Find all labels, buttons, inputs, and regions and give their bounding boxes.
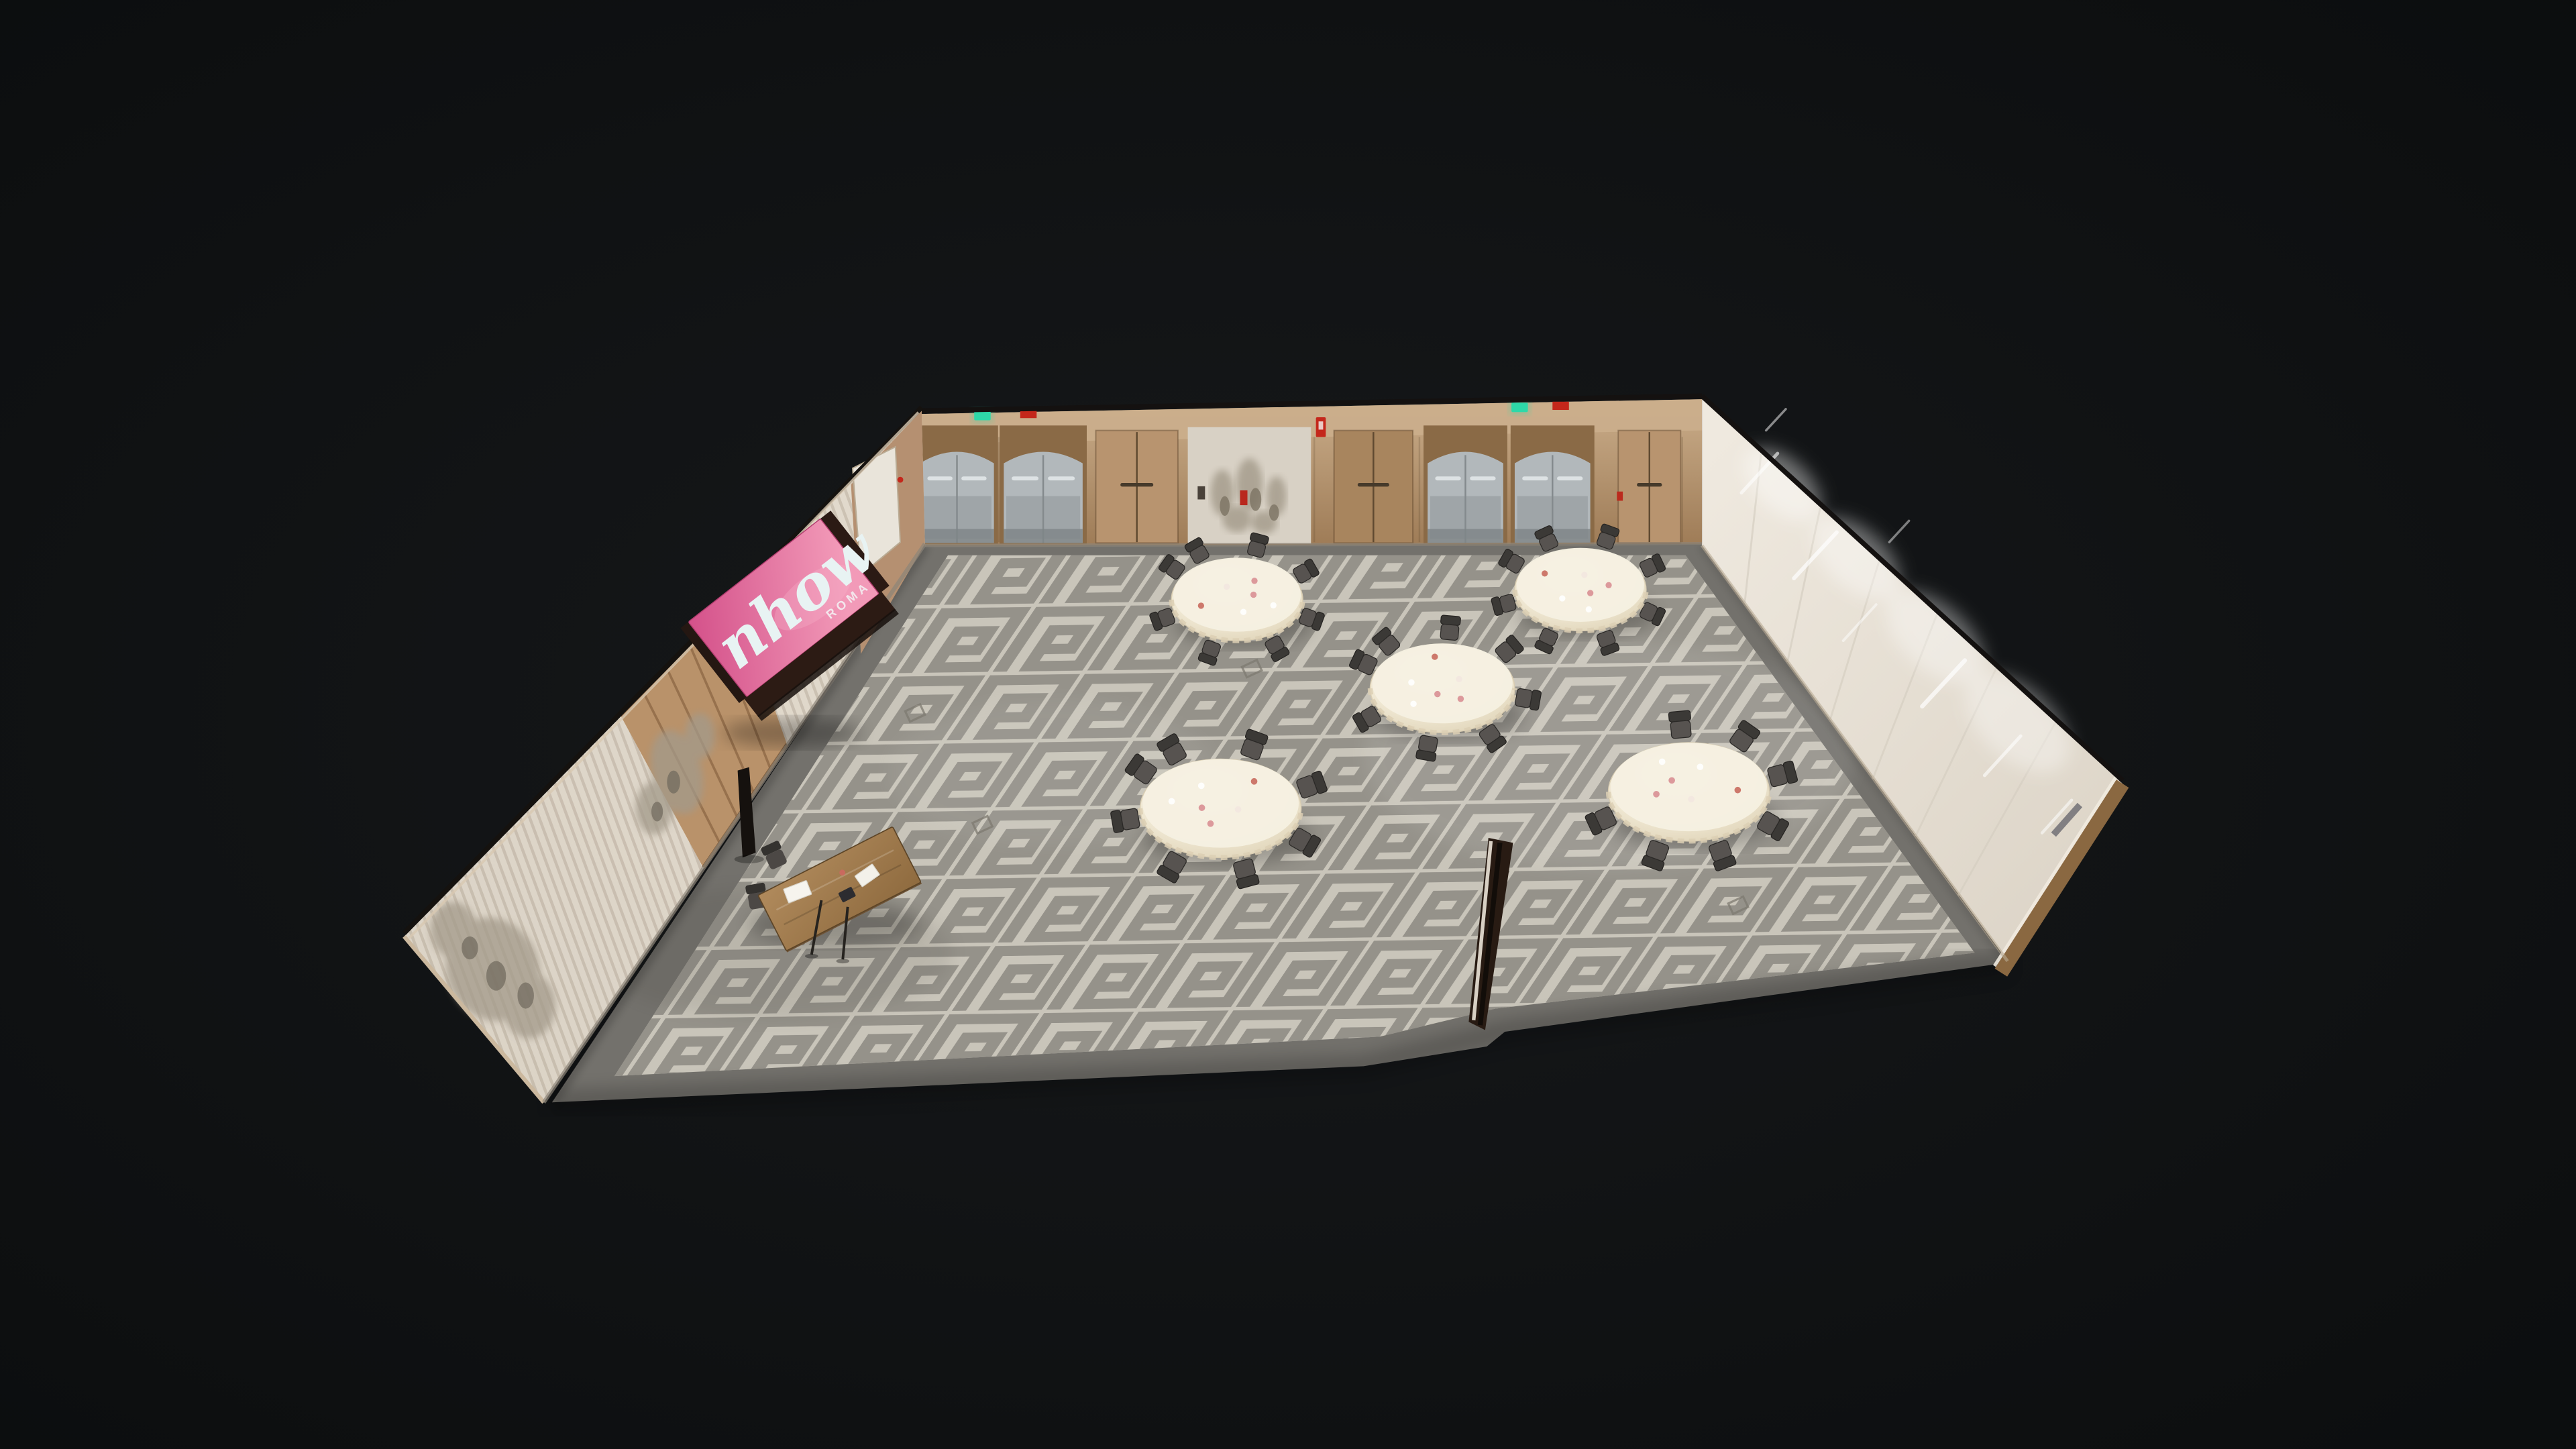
tabletop (1611, 743, 1767, 831)
place-setting-decor (1434, 691, 1440, 697)
place-setting-decor (1199, 804, 1205, 811)
place-setting-decor (1432, 653, 1438, 659)
push-bar (1557, 476, 1582, 480)
place-setting-decor (1198, 783, 1205, 790)
place-setting-decor (1668, 777, 1675, 784)
tabletop (1173, 557, 1301, 631)
place-setting-decor (1688, 796, 1695, 802)
room-3d-render[interactable]: nhow ROMA (0, 0, 2576, 1449)
chair (1439, 615, 1460, 641)
mural-accent (1269, 504, 1279, 521)
place-setting-decor (1207, 820, 1214, 827)
place-setting-decor (1251, 778, 1258, 785)
place-setting-decor (1653, 791, 1660, 798)
chair-seat (1440, 624, 1459, 641)
wood-door-unit (1334, 431, 1413, 543)
chair-seat (1418, 735, 1438, 753)
chair-seat (1515, 688, 1533, 708)
push-bar (1522, 476, 1548, 480)
place-setting-decor (1408, 680, 1414, 686)
push-bar (927, 476, 952, 480)
place-setting-decor (1458, 696, 1464, 702)
place-setting-decor (1697, 763, 1704, 770)
wood-door-unit (1618, 431, 1680, 543)
stand-shadow (735, 855, 764, 863)
red-call-point (1617, 492, 1623, 501)
gray-door-unit (1424, 425, 1507, 543)
place-setting-decor (1587, 590, 1593, 596)
place-setting-decor (1559, 595, 1565, 601)
tabletop (1142, 759, 1299, 847)
alarm-dot (898, 477, 904, 483)
push-bar (1048, 476, 1075, 480)
place-setting-decor (1542, 570, 1548, 576)
chair-seat (1670, 720, 1691, 739)
place-setting-decor (1250, 592, 1256, 598)
screen-floor-shadow (723, 718, 861, 747)
place-setting-decor (1605, 582, 1611, 588)
gray-door-unit (1000, 425, 1087, 543)
mural-accent (1250, 488, 1261, 511)
place-setting-decor (1240, 609, 1246, 615)
kick-plate (1004, 529, 1083, 543)
place-setting-decor (1586, 606, 1592, 612)
dollhouse-viewport[interactable]: nhow ROMA (0, 0, 2576, 1449)
gray-door-unit (1511, 425, 1595, 543)
wall-intercom (1197, 486, 1205, 500)
push-bar (1012, 476, 1038, 480)
place-setting-decor (1659, 759, 1666, 765)
push-bar (1470, 476, 1495, 480)
kick-plate (920, 529, 994, 543)
place-setting-decor (1735, 787, 1741, 794)
mic-stand-base (837, 959, 850, 963)
door-handle-bar (1120, 483, 1153, 486)
mural-accent (1220, 496, 1230, 516)
tabletop (1517, 548, 1644, 622)
place-setting-decor (1271, 602, 1277, 608)
tabletop (1373, 643, 1513, 723)
place-setting-decor (1251, 578, 1257, 584)
place-setting-decor (1581, 572, 1587, 578)
place-setting-decor (1169, 798, 1175, 805)
place-setting-decor (1198, 602, 1204, 608)
gray-door-unit (916, 425, 998, 543)
chair (1668, 710, 1693, 739)
place-setting-decor (1456, 676, 1462, 682)
back-wall (916, 396, 1702, 545)
door-handle-bar (1637, 483, 1662, 486)
exit-sign (974, 411, 990, 421)
wood-door-unit (1095, 431, 1177, 543)
place-setting-decor (1224, 584, 1230, 590)
red-safety-sign (1552, 402, 1568, 410)
mic-stand-base (805, 954, 818, 959)
push-bar (1435, 476, 1460, 480)
exit-sign (1511, 402, 1527, 412)
place-setting-decor (1410, 700, 1416, 706)
door-handle-bar (1358, 483, 1389, 486)
place-setting-decor (1235, 806, 1242, 813)
chair-seat (1120, 808, 1140, 830)
back-wall-doors (916, 425, 1680, 543)
sign-pictogram (1319, 421, 1324, 429)
skirting (925, 544, 1702, 545)
art-door-unit (1188, 427, 1311, 544)
push-bar (961, 476, 986, 480)
kick-plate (1428, 529, 1503, 543)
fire-extinguisher (1240, 490, 1247, 505)
